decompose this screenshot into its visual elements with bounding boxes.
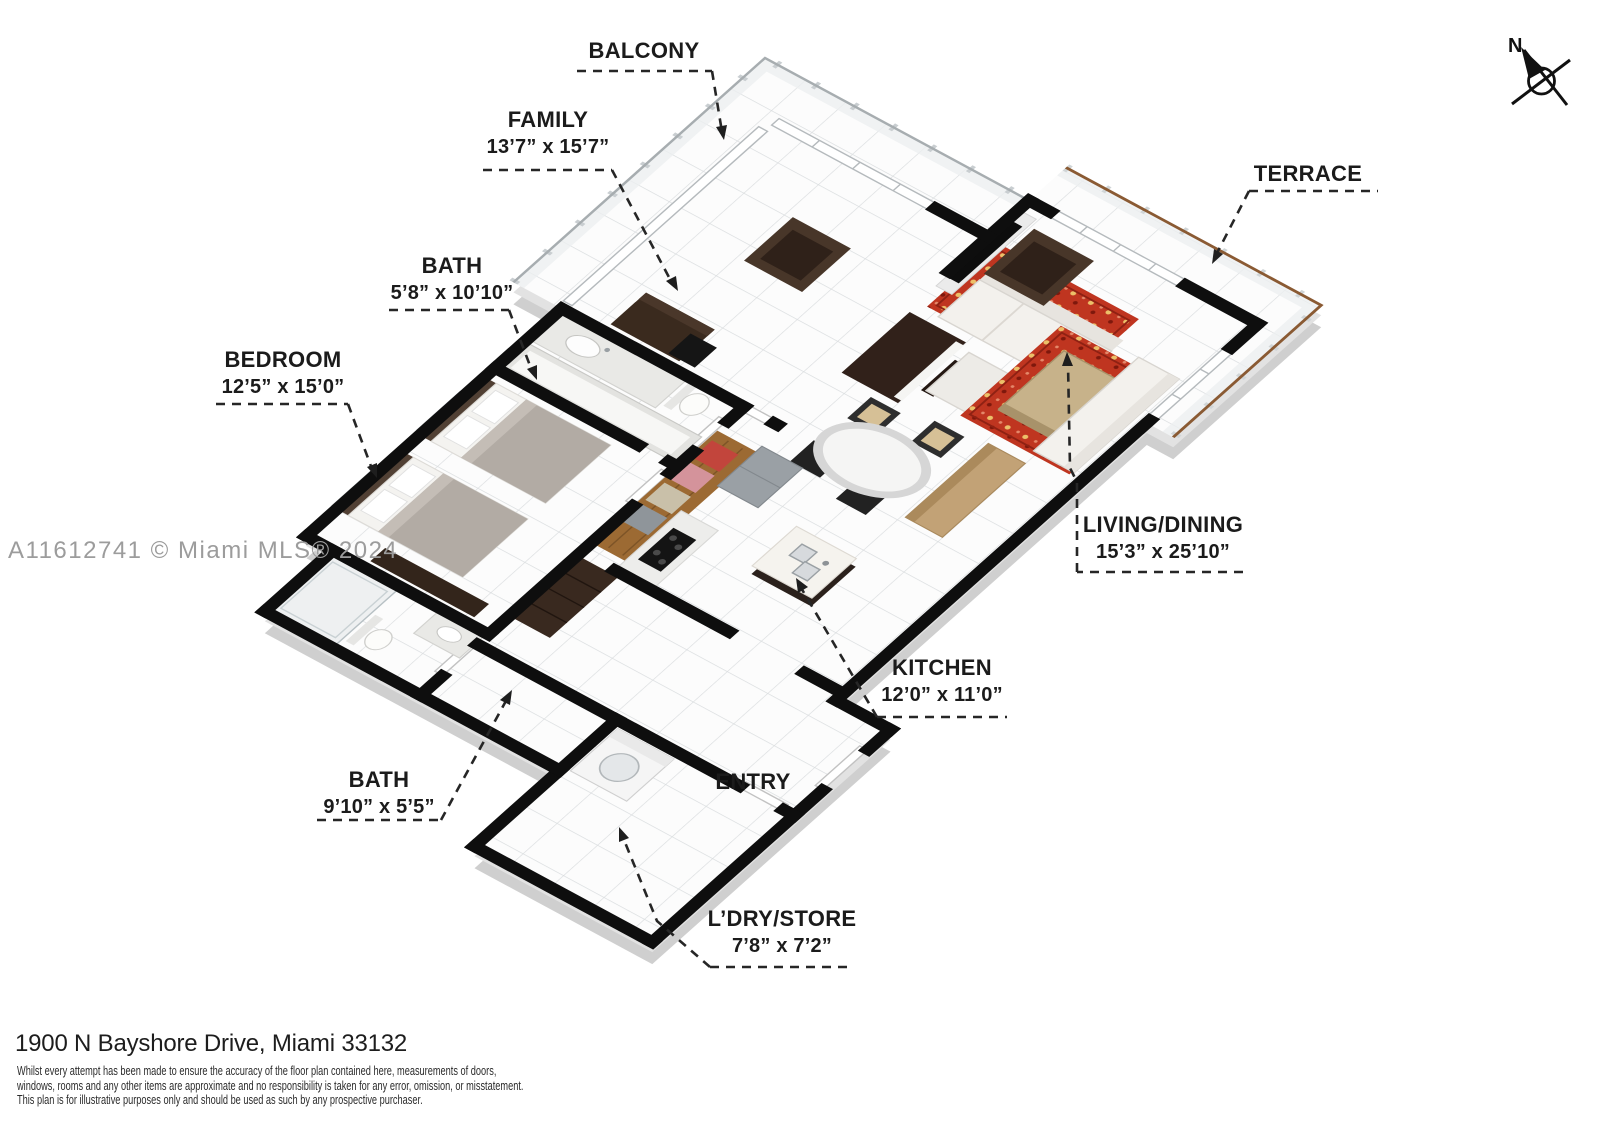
disclaimer-line: This plan is for illustrative purposes o… (17, 1093, 523, 1108)
room-dims: 12’5” x 15’0” (222, 375, 345, 399)
label-kitchen: KITCHEN 12’0” x 11’0” (881, 655, 1003, 707)
disclaimer-line: windows, rooms and any other items are a… (17, 1079, 523, 1094)
label-family: FAMILY 13’7” x 15’7” (487, 107, 610, 159)
label-living-dining: LIVING/DINING 15’3” x 25’10” (1083, 512, 1243, 564)
room-dims: 5’8” x 10’10” (391, 281, 514, 305)
disclaimer-line: Whilst every attempt has been made to en… (17, 1064, 523, 1079)
label-bedroom: BEDROOM 12’5” x 15’0” (222, 347, 345, 399)
disclaimer: Whilst every attempt has been made to en… (17, 1064, 523, 1108)
label-terrace: TERRACE (1254, 161, 1362, 187)
room-name: BATH (391, 253, 514, 279)
plan-iso-group (105, 25, 1349, 942)
property-address: 1900 N Bayshore Drive, Miami 33132 (15, 1030, 407, 1058)
room-dims: 15’3” x 25’10” (1083, 540, 1243, 564)
label-entry: ENTRY (715, 769, 790, 795)
room-dims: 13’7” x 15’7” (487, 135, 610, 159)
label-balcony: BALCONY (589, 38, 700, 64)
room-name: ENTRY (715, 769, 790, 795)
room-name: BATH (323, 767, 434, 793)
mls-watermark: A11612741 © Miami MLS® 2024 (8, 537, 398, 565)
compass-north-label: N (1508, 35, 1522, 57)
room-name: TERRACE (1254, 161, 1362, 187)
room-name: L’DRY/STORE (708, 906, 857, 932)
room-name: BEDROOM (222, 347, 345, 373)
room-dims: 12’0” x 11’0” (881, 683, 1003, 707)
label-laundry-store: L’DRY/STORE 7’8” x 7’2” (708, 906, 857, 958)
label-bath-bottom: BATH 9’10” x 5’5” (323, 767, 434, 819)
room-name: KITCHEN (881, 655, 1003, 681)
room-dims: 7’8” x 7’2” (708, 934, 857, 958)
room-name: BALCONY (589, 38, 700, 64)
room-name: LIVING/DINING (1083, 512, 1243, 538)
room-dims: 9’10” x 5’5” (323, 795, 434, 819)
label-bath-top: BATH 5’8” x 10’10” (391, 253, 514, 305)
compass: N (1508, 35, 1570, 105)
room-name: FAMILY (487, 107, 610, 133)
floorplan-page: N BALCONY FAMILY 13’7” x 15’7” BATH 5’8”… (0, 0, 1600, 1130)
